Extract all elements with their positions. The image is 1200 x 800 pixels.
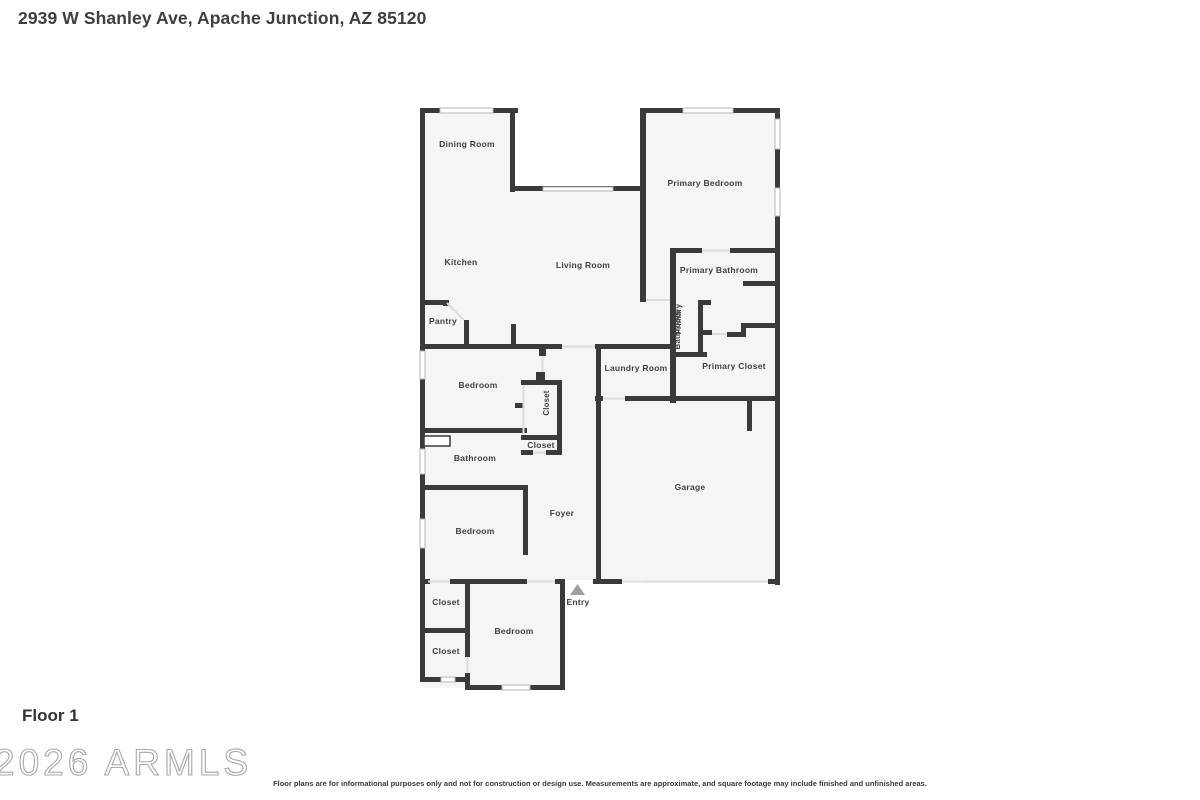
room-label-garage: Garage — [675, 482, 706, 492]
room-label-living-room: Living Room — [556, 260, 610, 270]
room-label-primary-bathroom: Primary Bathroom — [680, 265, 758, 275]
bath-fixture — [424, 436, 450, 446]
room-label-closet-2: Closet — [527, 440, 554, 450]
room-label-closet-1: Closet — [542, 390, 551, 415]
room-label-primary-closet: Primary Closet — [702, 361, 766, 371]
room-label-primary-bathroom-hall-2: Bathroom — [673, 311, 682, 350]
room-label-kitchen: Kitchen — [445, 257, 478, 267]
floor-plan: Dining Room Primary Bedroom Kitchen Livi… — [0, 0, 1200, 800]
floor-label: Floor 1 — [22, 706, 79, 726]
disclaimer-text: Floor plans are for informational purpos… — [0, 779, 1200, 788]
room-label-primary-bedroom: Primary Bedroom — [667, 178, 742, 188]
armls-watermark: 2026 ARMLS — [0, 742, 252, 784]
room-label-foyer: Foyer — [550, 508, 575, 518]
room-label-bedroom-1: Bedroom — [458, 380, 497, 390]
entry-arrow-icon — [570, 584, 585, 595]
room-label-laundry-room: Laundry Room — [605, 363, 668, 373]
room-label-bedroom-3: Bedroom — [494, 626, 533, 636]
room-label-closet-4: Closet — [432, 646, 459, 656]
room-label-entry: Entry — [567, 597, 590, 607]
room-label-closet-3: Closet — [432, 597, 459, 607]
room-label-pantry: Pantry — [429, 316, 457, 326]
room-label-bedroom-2: Bedroom — [455, 526, 494, 536]
room-label-dining-room: Dining Room — [439, 139, 495, 149]
room-label-bathroom: Bathroom — [454, 453, 496, 463]
